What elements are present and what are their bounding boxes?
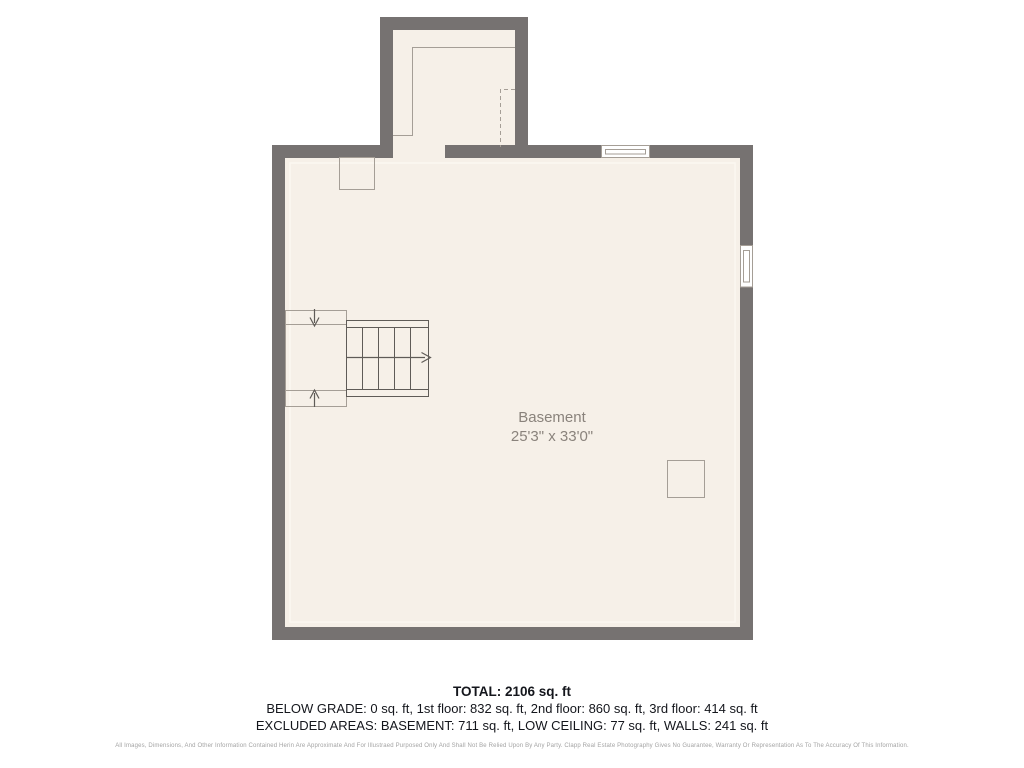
area-summary: TOTAL: 2106 sq. ft BELOW GRADE: 0 sq. ft… (0, 683, 1024, 734)
window-top (602, 146, 650, 158)
summary-floors: BELOW GRADE: 0 sq. ft, 1st floor: 832 sq… (0, 700, 1024, 717)
summary-total: TOTAL: 2106 sq. ft (0, 683, 1024, 700)
wall-left (272, 145, 285, 640)
wall-right (740, 145, 753, 640)
wall-top-left (272, 145, 393, 158)
stair-stringer-bottom (347, 390, 429, 397)
wall-bumpout-right (515, 17, 528, 158)
wall-bottom (272, 627, 753, 640)
floor-bumpout (393, 30, 515, 158)
summary-excluded: EXCLUDED AREAS: BASEMENT: 711 sq. ft, LO… (0, 717, 1024, 734)
disclaimer-text: All Images, Dimensions, And Other Inform… (0, 743, 1024, 749)
floor-area (285, 30, 740, 627)
wall-bumpout-left (380, 17, 393, 158)
room-dimensions: 25'3" x 33'0" (452, 427, 652, 446)
window-right (741, 246, 753, 288)
wall-top-right (445, 145, 753, 158)
floor-plan-canvas (0, 0, 1024, 660)
stair-stringer-top (347, 321, 429, 328)
room-label: Basement 25'3" x 33'0" (452, 408, 652, 446)
room-name: Basement (452, 408, 652, 427)
floor-plan-page: Basement 25'3" x 33'0" TOTAL: 2106 sq. f… (0, 0, 1024, 768)
wall-bumpout-top (380, 17, 528, 30)
